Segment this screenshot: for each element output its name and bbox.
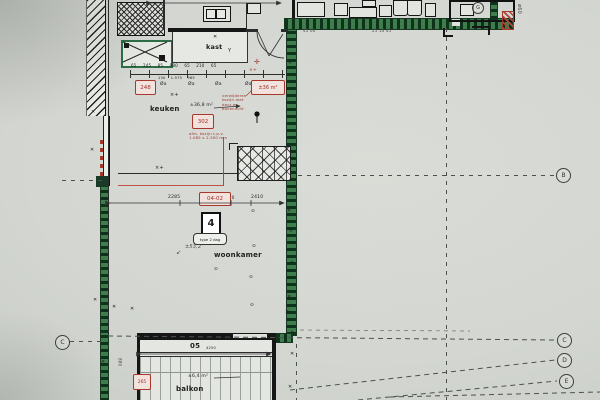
wall-left-new-green-lower <box>100 332 109 400</box>
y-mark: Y <box>228 49 231 55</box>
photo-shadow-bottomleft <box>0 300 140 400</box>
door-swing-arc <box>257 31 284 58</box>
red-code-302: 302 <box>192 114 214 129</box>
arrow-sw-mark: ↙ <box>176 249 181 256</box>
appliance-inner-2 <box>216 9 226 19</box>
red-cross-mark: ✛ <box>254 58 260 66</box>
dim-mid-left: 2285 <box>168 195 180 200</box>
keuken-area-note: ±36,8 m² <box>190 103 213 108</box>
window-mark-r6: ✕ <box>287 295 291 301</box>
outlet-symbol-3: ⊙ <box>214 267 218 272</box>
gridline-horizontal-c-left-stub <box>70 341 104 342</box>
window-mark-l3: ✕ <box>93 298 97 304</box>
furniture-table <box>379 5 392 17</box>
window-mark-l1: ✕ <box>91 110 95 116</box>
balkon-rule-1 <box>140 352 272 353</box>
grid-bubble-c-label: C <box>562 337 566 344</box>
valve-symbol-3: Øa <box>215 82 222 87</box>
gridline-diagonal-e <box>358 381 557 400</box>
grid-bubble-c-left-label: C <box>60 339 64 346</box>
window-mark-l2: ✕ <box>90 148 94 154</box>
dim-mid-right: 2410 <box>251 195 263 200</box>
gridline-horizontal-b-left-stub <box>62 180 102 181</box>
wall-red-hatched-strip <box>502 11 514 30</box>
woonkamer-area-note: ±53,2 <box>185 245 201 251</box>
furniture-tall-cabinet <box>425 3 436 17</box>
grid-bubble-b: B <box>556 168 571 183</box>
room-label-woonkamer: woonkamer <box>214 251 262 259</box>
cross-plus-mark-2: ×+ <box>155 166 164 172</box>
balkon-position-number: 05 <box>190 342 200 350</box>
dim-chain-top: 65 245 85 980 65 210 65 <box>131 64 285 69</box>
kast-x-mark: ✕ <box>213 35 217 41</box>
window-mark-b2: ✕ <box>290 352 294 358</box>
furniture-washer-2 <box>407 0 422 16</box>
red-note-small: afm. kozijn t.p.v. 1.085 x 2.300 mm <box>189 132 227 141</box>
furniture-bench <box>297 2 325 17</box>
dim-top-nums-1: 45 60 <box>303 29 315 34</box>
door-leaf-lines <box>258 32 283 56</box>
unit-type-text: type 2 dag <box>200 237 220 242</box>
grid-circle-g-label: G <box>476 5 480 11</box>
red-code-265-text: 265 <box>138 380 147 385</box>
unit-number: 4 <box>208 218 215 229</box>
gridline-diagonal-d <box>290 360 555 390</box>
unit-number-box: 4 <box>201 212 221 235</box>
wall-right-new-green <box>286 26 297 336</box>
window-mark-r4: ✕ <box>289 229 293 235</box>
shaft-crosshatched <box>117 2 165 36</box>
dim-top-nums-2: 25 14 45 <box>372 29 391 34</box>
red-area-box: ±36 m² <box>251 80 285 95</box>
outlet-symbol-4: ⊙ <box>249 275 253 280</box>
valve-symbol-1: Øa <box>160 82 167 87</box>
wall-left-existing <box>86 0 106 116</box>
balkon-right-green-cap <box>276 333 293 343</box>
gridline-vertical-mid <box>446 28 447 400</box>
balkon-width-dim: 4250 <box>206 346 216 350</box>
gridline-bottom-partial <box>390 392 600 397</box>
red-area-box-text: ±36 m² <box>258 85 277 91</box>
grid-bubble-b-label: B <box>561 172 565 179</box>
point-symbol <box>254 111 259 116</box>
red-code-248: 248 <box>135 80 156 95</box>
grid-bubble-c: C <box>557 333 572 348</box>
diameter-note: ø60 <box>515 4 521 14</box>
red-dim-code-text: 04-02 <box>207 196 223 202</box>
window-mark-l5: ✕ <box>130 307 134 313</box>
balkon-door-notch <box>233 334 267 338</box>
wall-mark-below-band <box>472 26 490 35</box>
wall-entry-left-bit <box>246 29 258 32</box>
window-mark-r5: ✕ <box>290 261 294 267</box>
red-dim-code: 04-02 <box>199 192 231 206</box>
grid-bubble-c-left: C <box>55 335 70 350</box>
wall-left-demolition-dashed <box>100 140 103 178</box>
interior-line-upper <box>118 173 250 174</box>
red-code-248-text: 248 <box>140 85 151 91</box>
grid-bubble-d-label: D <box>562 357 567 364</box>
red-plus-marks: ×+ <box>249 68 257 73</box>
appliance-inner-1 <box>206 9 216 19</box>
window-mark-r7: ✕ <box>285 310 289 316</box>
outlet-symbol-1: ⊙ <box>251 209 255 214</box>
balkon-wall-right <box>272 333 276 400</box>
gridline-horizontal-b <box>298 175 556 176</box>
grid-circle-g: G <box>472 2 484 14</box>
floorplan-photo: G 45 60 25 14 45 ø60 65 245 85 980 65 21… <box>0 0 600 400</box>
furniture-sofa <box>349 7 377 18</box>
red-code-265: 265 <box>133 374 151 390</box>
window-mark-r2: ✕ <box>289 150 293 156</box>
outlet-symbol-2: ⊙ <box>252 244 256 249</box>
dim-chain-ticks <box>130 70 285 78</box>
staircase-entry-hook <box>229 143 238 150</box>
window-mark-r3: ✕ <box>287 209 291 215</box>
room-label-balkon: balkon <box>176 385 204 393</box>
gridline-vertical-unit <box>296 344 297 400</box>
small-fixture-box <box>247 3 261 14</box>
balkon-area-note: ±6,4 m² <box>188 374 208 379</box>
shaft-corner-block-2 <box>159 55 165 61</box>
wall-stub-1 <box>163 0 165 30</box>
grid-bubble-e: E <box>559 374 574 389</box>
valve-symbol-2: Øa <box>188 82 195 87</box>
wall-top-stub <box>292 0 295 18</box>
grid-bubble-e-label: E <box>565 378 569 385</box>
room-label-keuken: keuken <box>150 105 180 113</box>
balkon-mid-joint <box>140 372 272 373</box>
window-mark-l6: ✕ <box>101 360 105 366</box>
interior-line-vertical <box>223 137 224 186</box>
room-label-kast: kast <box>206 44 223 52</box>
window-mark-r1: ✕ <box>288 61 292 67</box>
red-code-302-text: 302 <box>198 119 209 125</box>
furniture-small <box>362 0 376 7</box>
window-mark-l4: ✕ <box>112 305 116 311</box>
window-mark-b3: ✕ <box>288 385 292 391</box>
staircase <box>237 146 291 181</box>
cross-plus-mark-1: ×+ <box>170 93 179 99</box>
dim-side-left: 880 <box>117 358 122 366</box>
shaft-corner-block-1 <box>124 43 129 48</box>
grid-bubble-d: D <box>557 353 572 368</box>
demolition-red-line <box>118 185 224 186</box>
furniture-washer-1 <box>393 0 408 16</box>
dim-chain-bottom: 130 1.575 985 <box>158 76 195 80</box>
wall-left-inner-face <box>108 0 109 333</box>
red-note-block: verwijderen kozijn met deur en bovenlich… <box>222 94 247 112</box>
wall-stub-below-band <box>443 28 453 37</box>
outlet-symbol-5: ⊙ <box>250 303 254 308</box>
furniture-cabinet <box>334 3 348 16</box>
gridline-faint-upper <box>300 330 470 331</box>
